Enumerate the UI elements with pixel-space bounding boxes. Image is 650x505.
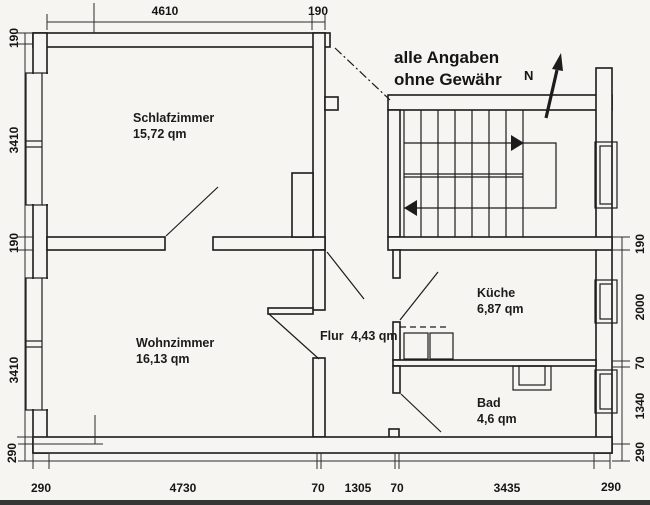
room-label-bad: Bad xyxy=(477,396,501,410)
disclaimer-line2: ohne Gewähr xyxy=(394,70,502,89)
wall-flur-kueche-upper xyxy=(393,250,400,278)
room-area-wohnzimmer: 16,13 qm xyxy=(136,352,190,366)
dim-label: 4730 xyxy=(170,481,197,495)
wall-duct xyxy=(292,173,313,237)
north-label: N xyxy=(524,68,533,83)
schlafzimmer-window-gap xyxy=(32,74,48,204)
room-label-flur: Flur xyxy=(320,329,344,343)
room-labels: Schlafzimmer 15,72 qm Wohnzimmer 16,13 q… xyxy=(133,111,524,426)
dimension-right: 190 2000 70 1340 290 xyxy=(612,234,647,462)
bad-sink-inner xyxy=(519,366,545,385)
stair-up-arrow-icon xyxy=(511,135,524,151)
dim-label: 290 xyxy=(633,442,647,462)
bad-door-swing xyxy=(401,394,441,432)
dim-label: 70 xyxy=(633,356,647,370)
wall-schlafzimmer-right xyxy=(313,33,325,250)
wall-wohnzimmer-flur-upper xyxy=(313,250,325,310)
dim-label: 290 xyxy=(601,480,621,494)
wall-kueche-bad xyxy=(393,360,596,366)
wall-bottom xyxy=(33,437,612,453)
dim-label: 4610 xyxy=(152,4,179,18)
scan-edge xyxy=(0,500,650,505)
dim-label: 1340 xyxy=(633,392,647,419)
dim-label: 70 xyxy=(390,481,404,495)
stair-down-arrow-icon xyxy=(404,200,417,216)
stair-walk-line xyxy=(404,143,556,208)
staircase xyxy=(404,110,556,237)
wall-middle-right xyxy=(213,237,325,250)
north-arrow-shaft xyxy=(546,70,557,118)
wall-stairwell-top xyxy=(388,95,612,110)
room-label-wohnzimmer: Wohnzimmer xyxy=(136,336,214,350)
wall-stairwell-bottom xyxy=(388,237,612,250)
dim-label: 190 xyxy=(7,28,21,48)
schlafzimmer-door-swing xyxy=(166,187,218,236)
wohnzimmer-window-gap xyxy=(32,279,48,409)
wohnzimmer-door-swing xyxy=(269,314,319,359)
dim-label: 190 xyxy=(308,4,328,18)
wall-entrance-stub xyxy=(325,97,338,110)
kueche-door-swing xyxy=(400,272,438,320)
room-area-bad: 4,6 qm xyxy=(477,412,517,426)
wall-middle-left xyxy=(47,237,165,250)
kueche-counter-left xyxy=(404,333,428,359)
dim-label: 1305 xyxy=(345,481,372,495)
dim-label: 70 xyxy=(311,481,325,495)
entrance-door-swing xyxy=(335,48,390,100)
dim-label: 290 xyxy=(31,481,51,495)
wall-stairwell-left xyxy=(388,110,400,237)
floor-plan: 4610 190 190 3410 190 3410 290 190 2000 … xyxy=(0,0,650,505)
room-area-schlafzimmer: 15,72 qm xyxy=(133,127,187,141)
dim-label: 3435 xyxy=(494,481,521,495)
room-label-kueche: Küche xyxy=(477,286,515,300)
bad-window-gap xyxy=(597,371,611,412)
disclaimer-line1: alle Angaben xyxy=(394,48,499,67)
floor-plan-svg: 4610 190 190 3410 190 3410 290 190 2000 … xyxy=(0,0,650,505)
dimension-top: 4610 190 xyxy=(47,3,328,33)
wall-wohnzimmer-flur-lower xyxy=(313,358,325,437)
dim-label: 190 xyxy=(7,233,21,253)
dimension-bottom: 290 4730 70 1305 70 3435 290 xyxy=(31,453,621,495)
dim-label: 290 xyxy=(5,443,19,463)
dim-label: 2000 xyxy=(633,293,647,320)
kueche-window-gap xyxy=(597,281,611,322)
room-area-kueche: 6,87 qm xyxy=(477,302,524,316)
dim-label: 190 xyxy=(633,234,647,254)
room-area-flur: 4,43 qm xyxy=(351,329,398,343)
kueche-counter-right xyxy=(430,333,453,359)
north-arrow-head xyxy=(552,53,563,71)
dim-label: 3410 xyxy=(7,126,21,153)
vestibule-door-swing xyxy=(327,252,364,299)
wall-top-left xyxy=(33,33,330,47)
dim-label: 3410 xyxy=(7,356,21,383)
room-label-schlafzimmer: Schlafzimmer xyxy=(133,111,214,125)
stairwell-window-gap xyxy=(597,143,611,207)
wall-flur-bad xyxy=(393,366,400,393)
wall-flur-door-stub xyxy=(268,308,313,314)
